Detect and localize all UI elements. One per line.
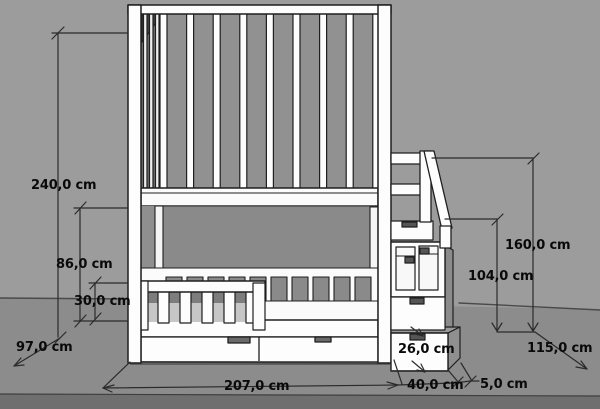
dim-label-total-depth: 115,0 cm (527, 342, 592, 356)
drawer-handle-notch (402, 222, 417, 227)
technical-drawing-page: 240,0 cm 86,0 cm 30,0 cm 97,0 cm 207,0 c… (0, 0, 600, 409)
dim-label-handrail-height: 160,0 cm (505, 239, 570, 253)
dim-label-step-height: 26,0 cm (398, 343, 454, 357)
dim-label-bed-length: 207,0 cm (224, 380, 289, 394)
back-left-post (155, 206, 163, 276)
handrail-bar-top (391, 153, 424, 164)
handrail-bar-lower (391, 184, 424, 195)
dim-label-bunk-clearance: 86,0 cm (56, 258, 112, 272)
underbed-drawers (129, 337, 391, 365)
guardrail-top-rail (136, 281, 265, 292)
drawer-handle-notch (315, 337, 331, 342)
dim-label-step-depth: 40,0 cm (407, 379, 463, 393)
upper-slats (141, 13, 380, 189)
middle-opening (139, 206, 378, 277)
drawer-handle-notch (228, 337, 250, 343)
dim-label-bed-depth: 97,0 cm (16, 341, 72, 355)
drawer-handle-notch (410, 298, 424, 304)
right-post (378, 5, 391, 363)
left-post (128, 5, 141, 363)
dim-label-stair-unit-height: 104,0 cm (468, 270, 533, 284)
guardrail-right-post (253, 283, 265, 330)
top-rail (128, 5, 391, 14)
upper-platform (141, 188, 378, 206)
dim-label-guardrail-height: 30,0 cm (74, 295, 130, 309)
cabinet-side-face (445, 246, 453, 330)
dim-label-total-height: 240,0 cm (31, 179, 96, 193)
door-handle-notch (405, 257, 414, 263)
bed-technical-drawing (0, 0, 600, 409)
back-right-post (370, 207, 378, 272)
door-handle-notch (420, 248, 429, 254)
cabinet-door-left (396, 247, 415, 290)
dim-label-side-offset: 5,0 cm (480, 378, 528, 392)
handrail-foot-post (440, 226, 451, 248)
